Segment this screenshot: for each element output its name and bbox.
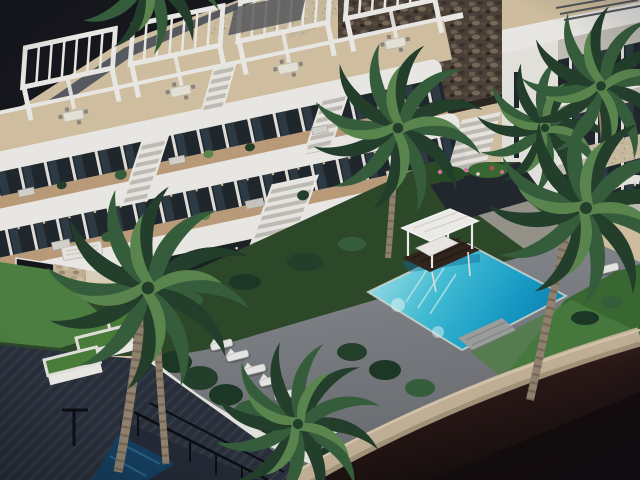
property-aerial-render [0,0,640,480]
vignette [0,0,640,480]
render-canvas [0,0,640,480]
